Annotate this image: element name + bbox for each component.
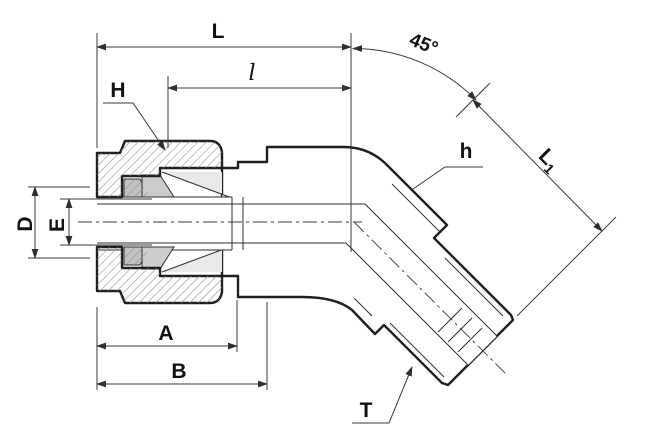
dim-label-h: h xyxy=(460,140,473,163)
tube xyxy=(97,197,232,250)
dim-label-E: E xyxy=(46,218,69,232)
dim-label-L: L xyxy=(212,20,225,43)
dim-label-H: H xyxy=(110,79,125,102)
fitting-drawing: L l 45° H h L1 D E A B T xyxy=(0,0,656,438)
thread-label-T: T xyxy=(360,399,373,422)
dim-label-l: l xyxy=(248,61,255,86)
dim-label-D: D xyxy=(14,216,37,231)
dim-label-A: A xyxy=(158,322,173,345)
drawing-canvas: L l 45° H h L1 D E A B T xyxy=(0,0,656,438)
dim-label-B: B xyxy=(171,360,186,383)
